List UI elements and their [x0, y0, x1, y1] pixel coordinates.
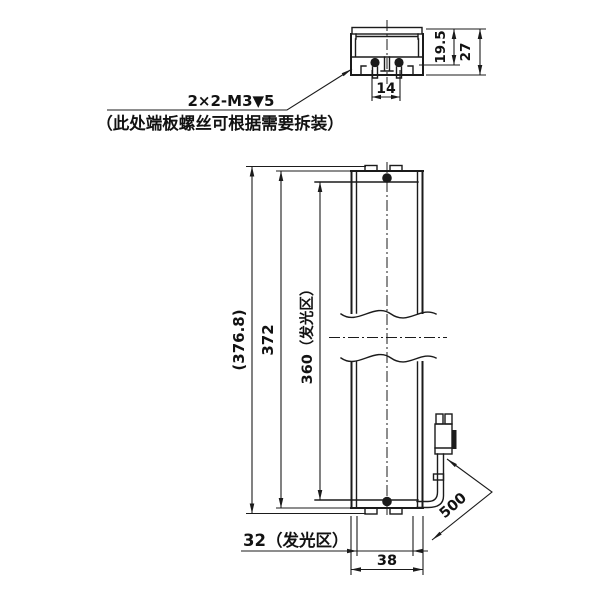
cable-path-outer [417, 454, 444, 508]
thread-callout: 2×2-M3▼5 （此处端板螺丝可根据需要拆装） [96, 69, 352, 133]
dim-text-27: 27 [458, 43, 474, 62]
callout-note: （此处端板螺丝可根据需要拆装） [96, 113, 344, 133]
cable-path-inner [417, 454, 438, 502]
dim-glow-360: 360（发光区） [298, 182, 322, 500]
dim-text-372: 372 [259, 324, 277, 355]
glow-area-lines [315, 182, 418, 500]
callout-text: 2×2-M3▼5 [187, 92, 274, 110]
dim-text-500: 500 [437, 490, 470, 522]
cable-joint [434, 474, 444, 480]
dim-cable-500: 500 [432, 459, 492, 540]
dim-text-19-5: 19.5 [433, 30, 449, 63]
connector-prong-right [445, 414, 452, 424]
screw-right [394, 58, 403, 67]
dim-text-38: 38 [377, 553, 397, 569]
dim-text-376-8: (376.8) [230, 309, 248, 370]
dim-glow-width-32: 32（发光区） [241, 516, 428, 556]
connector-body [435, 424, 452, 454]
drawing-canvas: 14 19.5 27 2×2-M3▼5 （此处端板螺丝可根据需要拆装） [0, 0, 600, 600]
dim-text-360: 360（发光区） [298, 282, 316, 385]
front-view [315, 162, 447, 517]
dim-text-32: 32（发光区） [243, 530, 348, 550]
end-section-view: 14 19.5 27 [351, 20, 486, 101]
engineering-drawing: 14 19.5 27 2×2-M3▼5 （此处端板螺丝可根据需要拆装） [0, 0, 600, 600]
dim-width-38: 38 [351, 516, 423, 575]
dim-text-14: 14 [376, 81, 396, 97]
connector-prong-left [436, 414, 443, 424]
dim-overall-376-8: (376.8) [230, 167, 366, 514]
dim-depth-19-5: 19.5 [419, 29, 486, 65]
screw-left [370, 58, 379, 67]
break-line-lower [341, 355, 436, 362]
connector-clip [452, 430, 457, 449]
